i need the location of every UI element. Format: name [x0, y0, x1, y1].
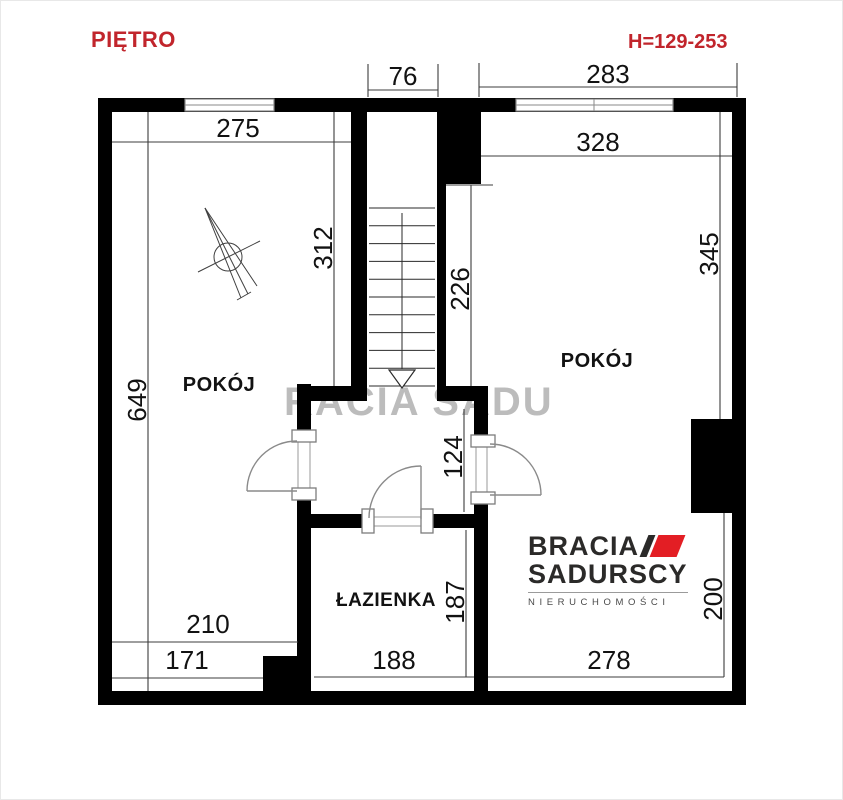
chimney-stair: [437, 112, 481, 184]
floor-plan-page: PIĘTRO H=129-253 RACIA SADU: [0, 0, 843, 800]
dim-188: 188: [372, 645, 415, 675]
wall-stair-left: [351, 112, 367, 401]
dim-649: 649: [122, 378, 152, 421]
stair-down-arrow-icon: [389, 370, 415, 388]
dim-200: 200: [698, 577, 728, 620]
bath-door-arc: [369, 466, 421, 518]
logo-mark-icon: [640, 535, 686, 557]
logo-brand-top: BRACIA: [528, 532, 639, 560]
door-swings: [247, 441, 541, 519]
floor-title: PIĘTRO: [91, 27, 176, 53]
dim-312: 312: [308, 226, 338, 269]
bath-door-jamb: [362, 509, 374, 533]
left-door-jamb: [292, 430, 316, 442]
room-label-bathroom: ŁAZIENKA: [336, 590, 436, 611]
floor-plan-drawing: 76 283 275 328 312 226 345 649 124 210 1…: [1, 1, 843, 800]
right-door-jamb: [471, 435, 495, 447]
logo-brand-bottom: SADURSCY: [528, 560, 688, 588]
room-label-right: POKÓJ: [561, 348, 634, 372]
room-label-left: POKÓJ: [183, 372, 256, 396]
wall-bottom: [98, 691, 746, 705]
roof-window-line: [205, 208, 248, 294]
dim-210: 210: [186, 609, 229, 639]
right-door-arc: [490, 444, 541, 495]
logo-divider: [528, 592, 688, 593]
logo-mark-red: [650, 535, 686, 557]
dim-275: 275: [216, 113, 259, 143]
wall-bath-right: [474, 386, 488, 691]
right-door-jamb: [471, 492, 495, 504]
wall-left: [98, 98, 112, 705]
left-door-arc: [247, 441, 297, 491]
dim-226: 226: [445, 267, 475, 310]
dim-283: 283: [586, 59, 629, 89]
logo-top-row: BRACIA: [528, 532, 688, 560]
staircase: [369, 208, 435, 388]
chimney-right: [691, 419, 732, 513]
dim-171: 171: [165, 645, 208, 675]
dim-187: 187: [440, 580, 470, 623]
left-door-jamb: [292, 488, 316, 500]
bath-door-opening: [374, 512, 423, 530]
logo-tagline: NIERUCHOMOŚCI: [528, 597, 688, 608]
ceiling-height-note: H=129-253: [628, 31, 728, 54]
dim-345: 345: [694, 232, 724, 275]
dim-124: 124: [438, 435, 468, 478]
dim-328: 328: [576, 127, 619, 157]
chimney-bottom: [263, 656, 301, 691]
roof-window-symbol: [198, 208, 260, 300]
wall-right: [732, 98, 746, 705]
dim-278: 278: [587, 645, 630, 675]
bath-door-jamb: [421, 509, 433, 533]
dim-76: 76: [389, 61, 418, 91]
agency-logo: BRACIA SADURSCY NIERUCHOMOŚCI: [528, 532, 688, 608]
